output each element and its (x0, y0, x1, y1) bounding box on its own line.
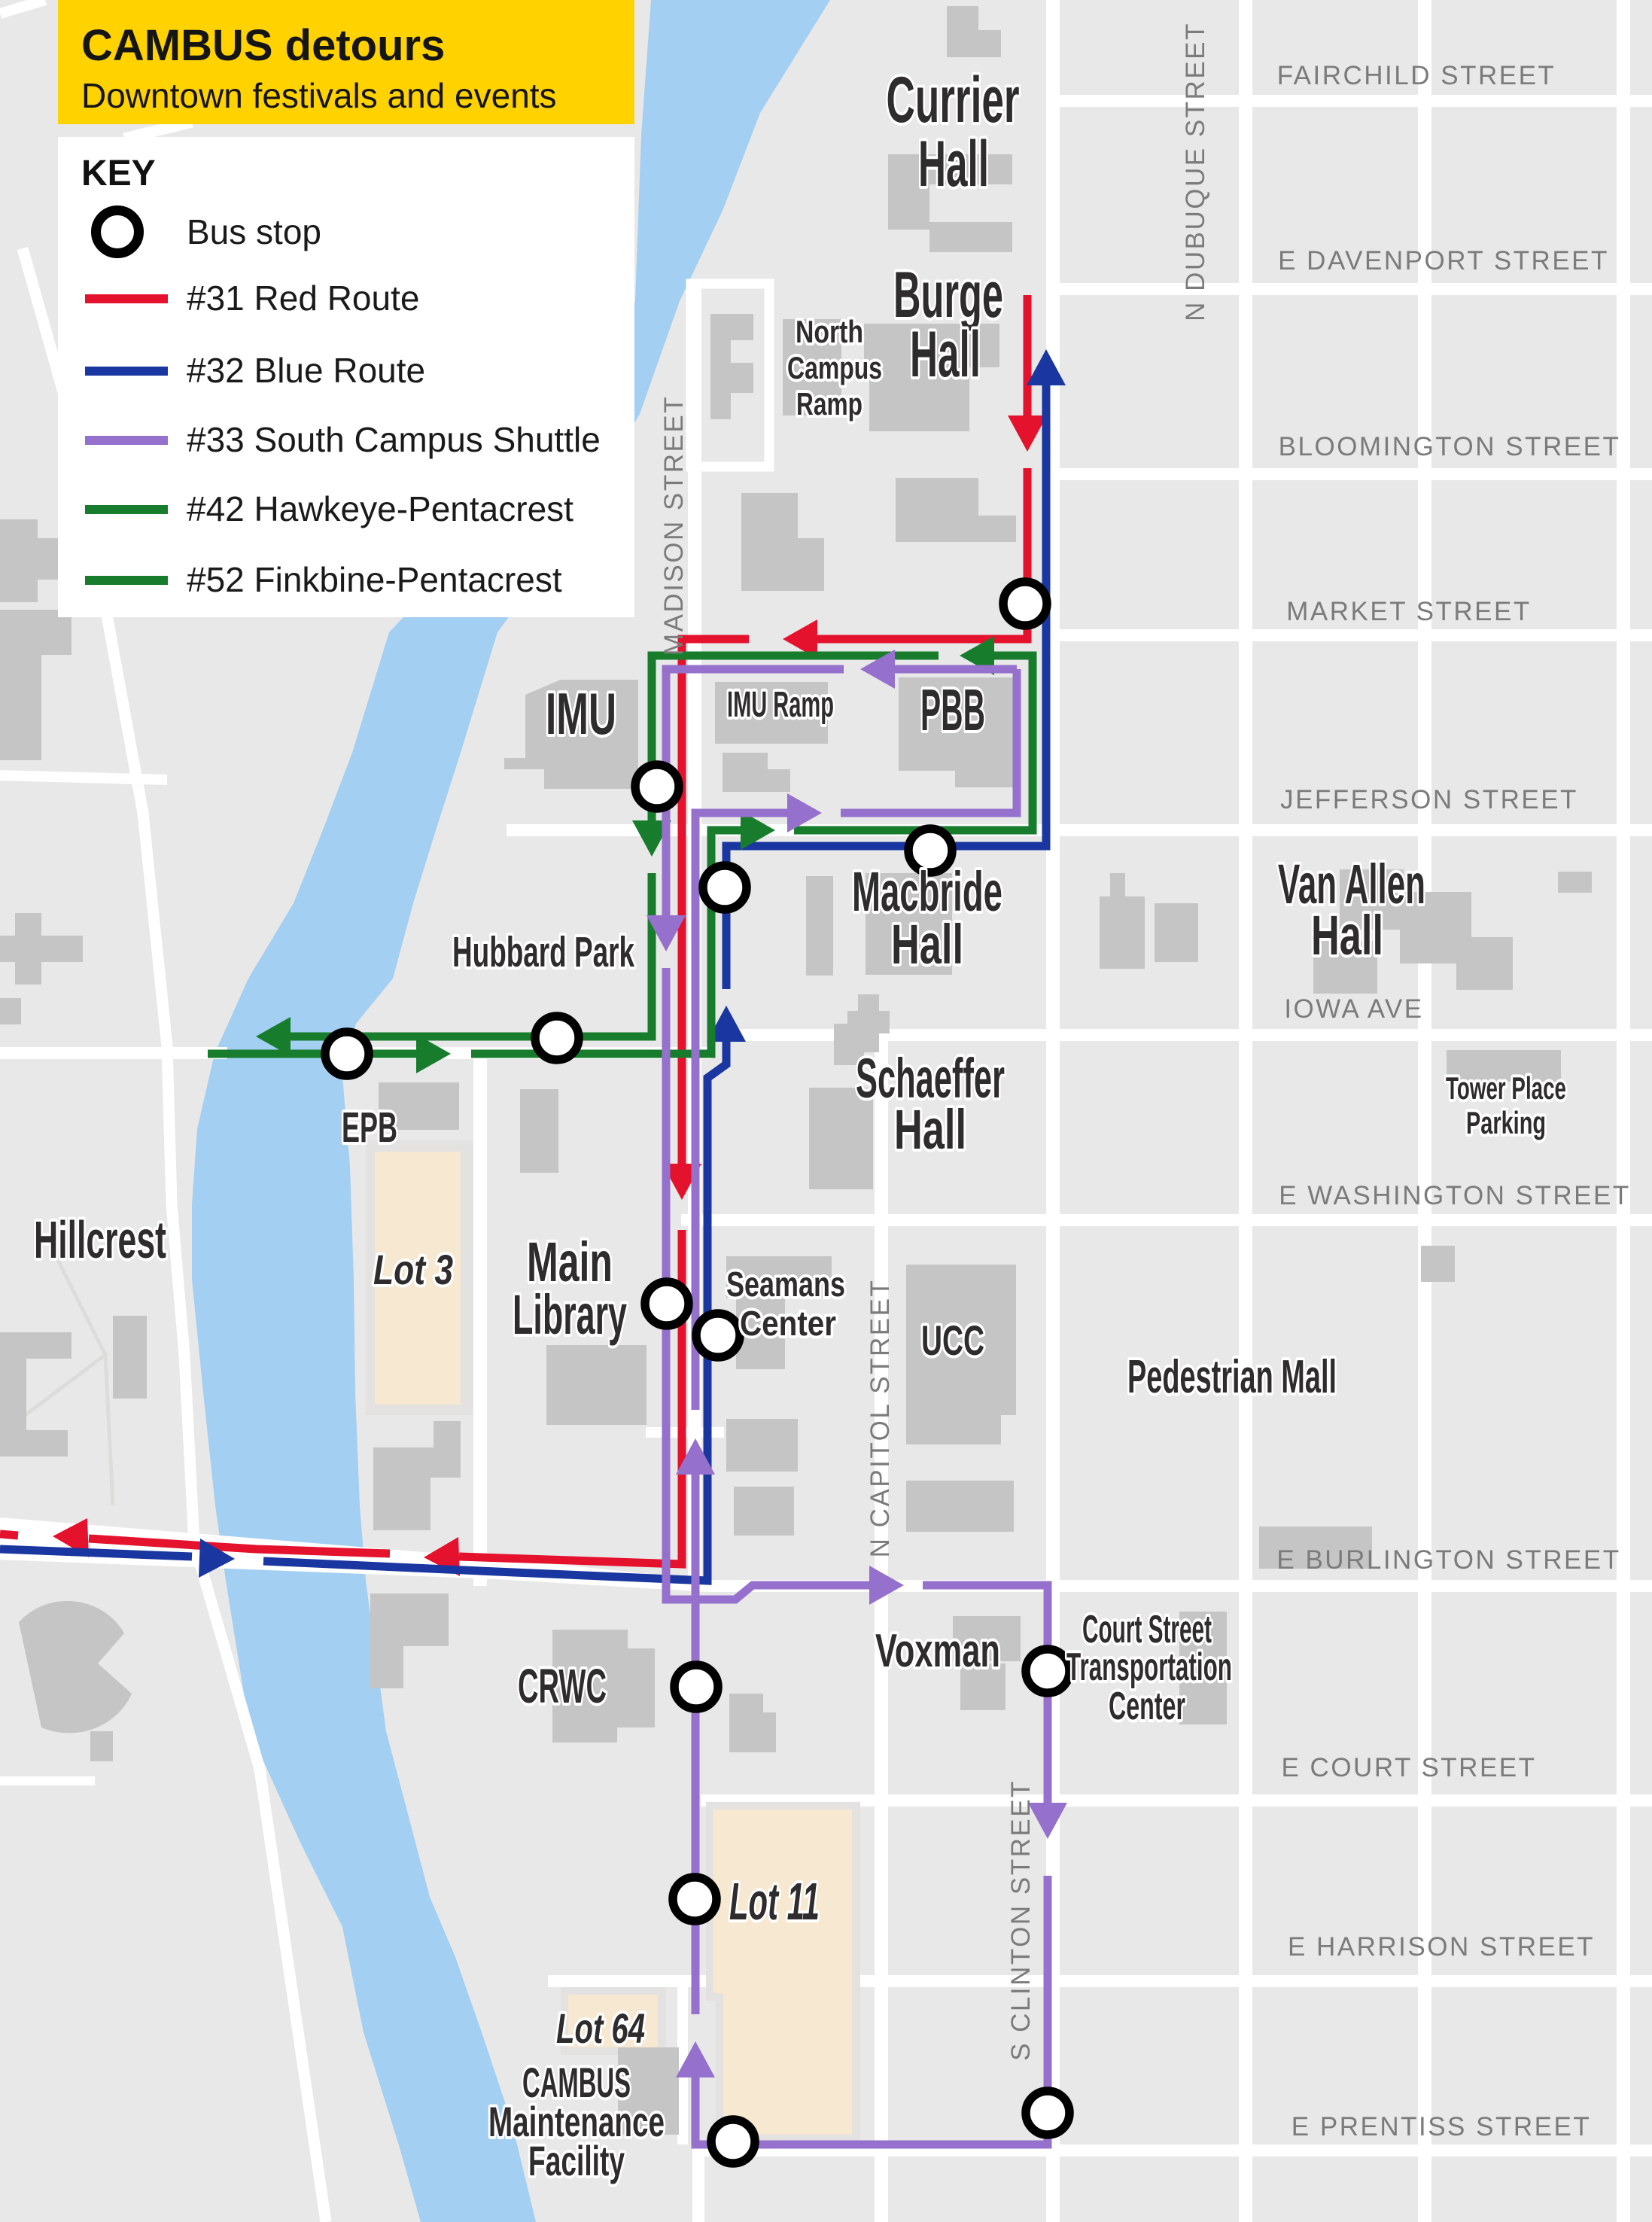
svg-text:Pedestrian Mall: Pedestrian Mall (1127, 1351, 1337, 1403)
svg-text:#52 Finkbine-Pentacrest: #52 Finkbine-Pentacrest (187, 560, 562, 599)
svg-text:Voxman: Voxman (875, 1625, 1000, 1677)
svg-text:N DUBUQUE STREET: N DUBUQUE STREET (1181, 22, 1210, 321)
svg-text:Campus: Campus (787, 350, 882, 385)
svg-text:Currier: Currier (887, 64, 1020, 136)
svg-text:Lot 3: Lot 3 (373, 1246, 453, 1293)
svg-text:Library: Library (513, 1283, 627, 1346)
svg-text:FAIRCHILD STREET: FAIRCHILD STREET (1277, 61, 1556, 90)
svg-text:E PRENTISS STREET: E PRENTISS STREET (1291, 2112, 1591, 2141)
svg-text:Seamans: Seamans (726, 1265, 845, 1304)
svg-text:#33 South Campus Shuttle: #33 South Campus Shuttle (187, 420, 601, 459)
svg-text:E COURT STREET: E COURT STREET (1281, 1753, 1536, 1782)
svg-text:#42 Hawkeye-Pentacrest: #42 Hawkeye-Pentacrest (187, 489, 573, 528)
svg-text:Lot 64: Lot 64 (556, 2004, 645, 2052)
svg-text:Transportation: Transportation (1066, 1645, 1232, 1689)
svg-text:BLOOMINGTON STREET: BLOOMINGTON STREET (1279, 432, 1621, 461)
svg-text:#32 Blue Route: #32 Blue Route (187, 351, 425, 390)
svg-text:Facility: Facility (528, 2137, 625, 2184)
svg-text:Lot 11: Lot 11 (729, 1872, 820, 1931)
svg-text:Center: Center (740, 1304, 836, 1343)
svg-text:Hall: Hall (894, 1098, 966, 1161)
svg-text:North: North (796, 314, 863, 349)
svg-text:KEY: KEY (81, 154, 156, 193)
svg-text:Center: Center (1109, 1685, 1185, 1728)
svg-text:JEFFERSON STREET: JEFFERSON STREET (1280, 785, 1578, 814)
svg-text:Hubbard Park: Hubbard Park (452, 928, 634, 976)
svg-text:Bus stop: Bus stop (187, 212, 321, 251)
svg-text:Hall: Hall (891, 913, 963, 976)
svg-text:IMU: IMU (546, 680, 616, 747)
svg-text:PBB: PBB (920, 677, 985, 743)
svg-text:Downtown festivals and events: Downtown festivals and events (81, 76, 557, 115)
svg-text:E BURLINGTON STREET: E BURLINGTON STREET (1276, 1545, 1620, 1575)
svg-text:N CAPITOL STREET: N CAPITOL STREET (866, 1279, 895, 1558)
svg-text:E DAVENPORT STREET: E DAVENPORT STREET (1278, 246, 1609, 275)
svg-text:Parking: Parking (1466, 1105, 1546, 1140)
svg-text:MARKET STREET: MARKET STREET (1286, 597, 1532, 626)
svg-text:#31 Red Route: #31 Red Route (187, 279, 419, 318)
svg-text:Ramp: Ramp (796, 386, 863, 422)
svg-text:EPB: EPB (342, 1103, 397, 1152)
svg-text:MADISON STREET: MADISON STREET (659, 395, 689, 656)
svg-text:Tower Place: Tower Place (1446, 1070, 1566, 1106)
svg-text:Hall: Hall (1311, 904, 1383, 966)
svg-text:UCC: UCC (921, 1316, 984, 1364)
svg-text:E HARRISON STREET: E HARRISON STREET (1288, 1932, 1595, 1962)
svg-text:Hillcrest: Hillcrest (34, 1210, 166, 1269)
svg-text:E WASHINGTON STREET: E WASHINGTON STREET (1279, 1181, 1631, 1210)
svg-text:Hall: Hall (918, 128, 989, 200)
svg-text:CAMBUS detours: CAMBUS detours (81, 21, 445, 70)
svg-text:S CLINTON STREET: S CLINTON STREET (1006, 1779, 1036, 2061)
svg-text:IOWA AVE: IOWA AVE (1284, 994, 1423, 1024)
svg-text:IMU Ramp: IMU Ramp (727, 685, 834, 725)
svg-text:Hall: Hall (910, 318, 981, 391)
svg-text:CRWC: CRWC (518, 1659, 607, 1713)
